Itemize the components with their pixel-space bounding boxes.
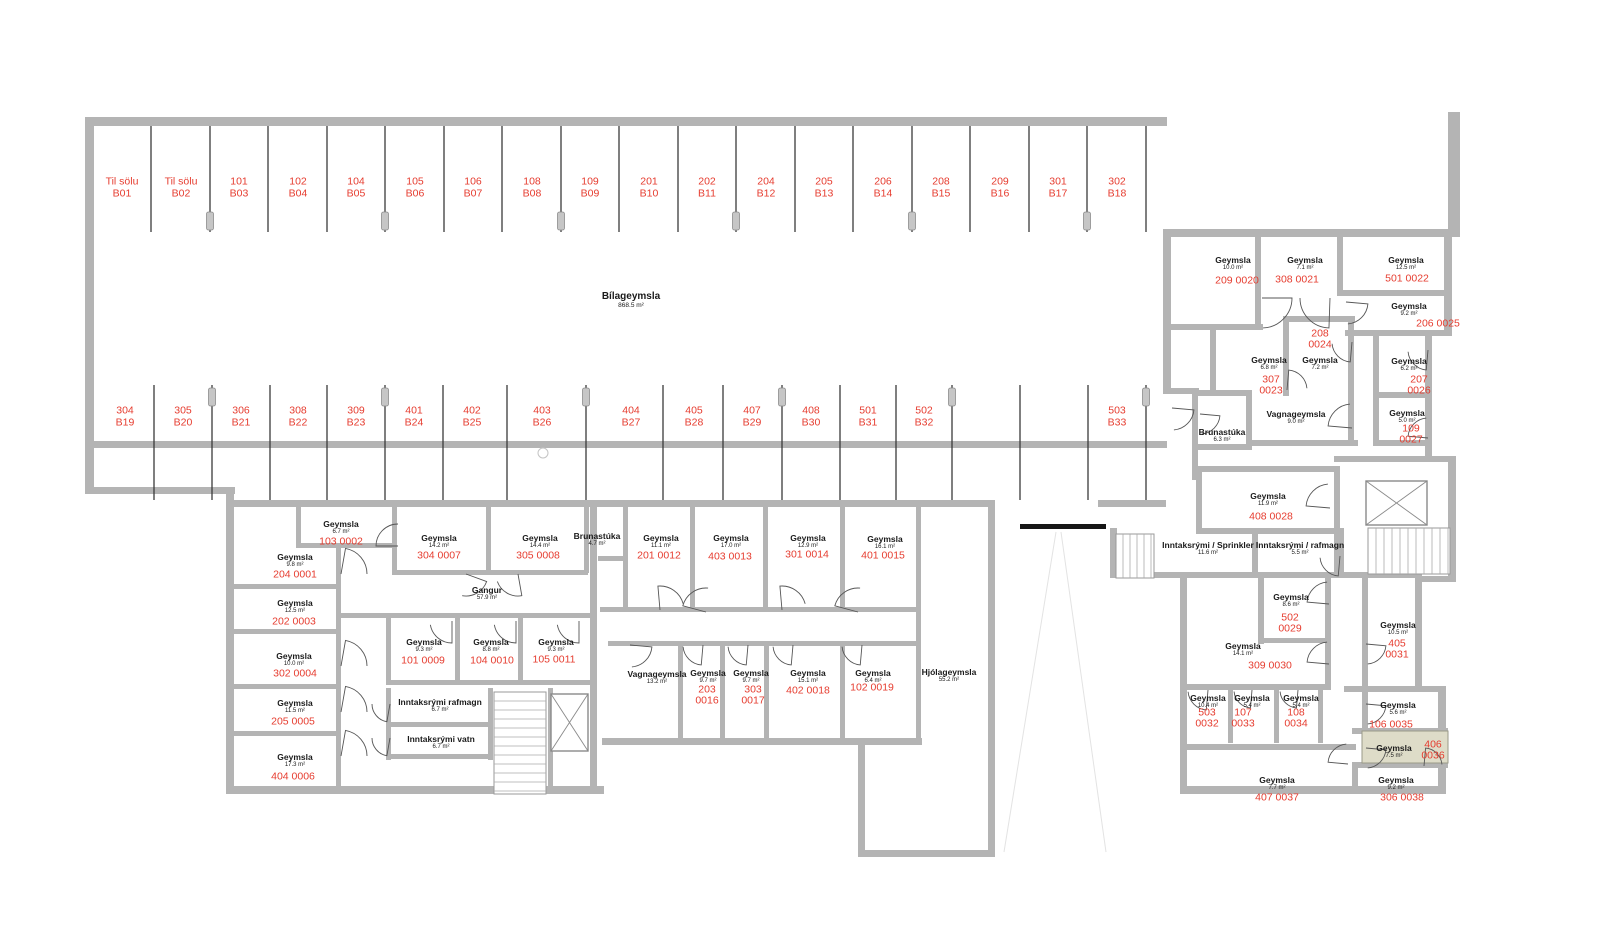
room-area: 7.5 m² (1376, 753, 1411, 760)
parking-stall-label: 306 B21 (232, 405, 251, 429)
room-name: Geymsla (277, 553, 312, 562)
room-name: Gangur (472, 586, 502, 595)
unit-id-label: 308 0021 (1275, 274, 1319, 285)
unit-id-label: 207 0026 (1407, 375, 1430, 398)
room-name: Geymsla (421, 534, 456, 543)
room-name: Geymsla (1380, 701, 1415, 710)
unit-id-label: 302 0004 (273, 668, 317, 679)
room-name: Hjólageymsla (922, 668, 977, 677)
unit-id-label: 204 0001 (273, 569, 317, 580)
unit-id-label: 103 0002 (319, 536, 363, 547)
room-area: 6.8 m² (1251, 365, 1286, 372)
unit-id-label: 206 0025 (1416, 318, 1460, 329)
room-label: Geymsla7.5 m² (1376, 744, 1411, 760)
room-area: 8.6 m² (1273, 602, 1308, 609)
room-name: Geymsla (790, 534, 825, 543)
room-name: Geymsla (867, 535, 902, 544)
unit-id-label: 107 0033 (1231, 708, 1254, 731)
room-area: 6.3 m² (1199, 437, 1246, 444)
parking-stall-label: 401 B24 (405, 405, 424, 429)
room-label: Geymsla9.7 m² (733, 669, 768, 685)
unit-id-label: 102 0019 (850, 682, 894, 693)
parking-stall-label: 209 B16 (991, 176, 1010, 200)
room-name: Geymsla (1283, 694, 1318, 703)
room-label: Geymsla17.3 m² (277, 753, 312, 769)
unit-id-label: 406 0036 (1421, 740, 1444, 763)
room-area: 7.1 m² (1287, 265, 1322, 272)
room-label: Geymsla6.2 m² (1391, 357, 1426, 373)
parking-stall-label: 308 B22 (289, 405, 308, 429)
room-name: Geymsla (538, 638, 573, 647)
unit-id-label: 307 0023 (1259, 375, 1282, 398)
room-name: Geymsla (690, 669, 725, 678)
room-name: Geymsla (1215, 256, 1250, 265)
room-area: 11.9 m² (1250, 501, 1285, 508)
room-name: Geymsla (1391, 357, 1426, 366)
room-label: Geymsla10.0 m² (1215, 256, 1250, 272)
room-label: Vagnageymsla13.2 m² (627, 670, 686, 686)
room-label: Geymsla7.2 m² (1302, 356, 1337, 372)
parking-stall-label: 102 B04 (289, 176, 308, 200)
staircases-layer (494, 528, 1450, 794)
room-label: Inntaksrými / Sprinkler11.6 m² (1162, 541, 1254, 557)
parking-stall-label: 202 B11 (698, 176, 716, 200)
room-label: Geymsla8.8 m² (473, 638, 508, 654)
room-label: Geymsla6.8 m² (1251, 356, 1286, 372)
floor-plan: Bílageymsla 868.5 m² Geymsla6.7 m²Geymsl… (0, 0, 1600, 929)
room-area: 12.5 m² (277, 608, 312, 615)
room-name: Geymsla (277, 699, 312, 708)
parking-stall-label: 204 B12 (757, 176, 776, 200)
room-name: Geymsla (1273, 593, 1308, 602)
parking-stall-label: 205 B13 (815, 176, 834, 200)
unit-id-label: 203 0016 (695, 685, 718, 708)
parking-stall-label: 309 B23 (347, 405, 366, 429)
room-name: Geymsla (1251, 356, 1286, 365)
unit-id-label: 104 0010 (470, 655, 514, 666)
unit-id-label: 106 0035 (1369, 719, 1413, 730)
room-name: Geymsla (1391, 302, 1426, 311)
room-name: Inntaksrými / rafmagn (1256, 541, 1344, 550)
room-area: 4.7 m² (574, 541, 621, 548)
parking-stall-label: 301 B17 (1049, 176, 1068, 200)
room-label: Geymsla7.1 m² (1287, 256, 1322, 272)
room-label: Brunastúka6.3 m² (1199, 428, 1246, 444)
room-area: 55.2 m² (922, 677, 977, 684)
parking-stall-label: 503 B33 (1108, 405, 1127, 429)
room-label: Geymsla10.0 m² (276, 652, 311, 668)
unit-id-label: 404 0006 (271, 771, 315, 782)
room-label: Geymsla14.2 m² (421, 534, 456, 550)
room-name: Geymsla (713, 534, 748, 543)
room-label: Geymsla17.0 m² (713, 534, 748, 550)
room-name: Geymsla (643, 534, 678, 543)
parking-stall-label: 502 B32 (915, 405, 934, 429)
room-area: 57.9 m² (472, 595, 502, 602)
room-label: Geymsla14.4 m² (522, 534, 557, 550)
garage-title-label: Bílageymsla 868.5 m² (602, 291, 660, 309)
unit-id-label: 301 0014 (785, 549, 829, 560)
room-label: Vagnageymsla9.0 m² (1266, 410, 1325, 426)
unit-id-label: 408 0028 (1249, 511, 1293, 522)
room-name: Geymsla (1376, 744, 1411, 753)
unit-id-label: 201 0012 (637, 550, 681, 561)
room-name: Geymsla (406, 638, 441, 647)
unit-id-label: 405 0031 (1385, 639, 1408, 662)
room-label: Geymsla10.5 m² (1380, 621, 1415, 637)
room-area: 8.8 m² (473, 647, 508, 654)
parking-stall-label: 402 B25 (463, 405, 482, 429)
parking-stall-label: 407 B29 (743, 405, 762, 429)
parking-stall-label: 105 B06 (406, 176, 425, 200)
drain-symbol (538, 448, 548, 458)
parking-stall-label: 206 B14 (874, 176, 893, 200)
room-label: Geymsla9.8 m² (277, 553, 312, 569)
room-area: 5.5 m² (1256, 550, 1344, 557)
unit-id-label: 306 0038 (1380, 792, 1424, 803)
room-name: Inntaksrými vatn (407, 735, 475, 744)
garage-area: 868.5 m² (602, 302, 660, 309)
room-area: 10.0 m² (1215, 265, 1250, 272)
room-label: Geymsla5.6 m² (1380, 701, 1415, 717)
room-area: 6.7 m² (398, 707, 482, 714)
unit-id-label: 303 0017 (741, 685, 764, 708)
room-area: 7.2 m² (1302, 365, 1337, 372)
room-name: Geymsla (277, 753, 312, 762)
unit-id-label: 209 0020 (1215, 275, 1259, 286)
room-label: Geymsla6.7 m² (323, 520, 358, 536)
garage-name: Bílageymsla (602, 291, 660, 302)
room-name: Geymsla (1378, 776, 1413, 785)
room-name: Geymsla (473, 638, 508, 647)
unit-id-label: 402 0018 (786, 685, 830, 696)
room-label: Geymsla12.5 m² (1388, 256, 1423, 272)
room-area: 11.5 m² (277, 708, 312, 715)
room-label: Brunastúka4.7 m² (574, 532, 621, 548)
room-label: Geymsla11.9 m² (1250, 492, 1285, 508)
room-area: 13.2 m² (627, 679, 686, 686)
room-label: Gangur57.9 m² (472, 586, 502, 602)
parking-stall-label: 104 B05 (347, 176, 366, 200)
room-name: Geymsla (733, 669, 768, 678)
parking-stall-label: 408 B30 (802, 405, 821, 429)
ramp-layer (1004, 524, 1106, 852)
room-label: Geymsla8.6 m² (1273, 593, 1308, 609)
walls-layer (85, 112, 1460, 857)
room-area: 17.3 m² (277, 762, 312, 769)
room-name: Brunastúka (574, 532, 621, 541)
room-name: Geymsla (1389, 409, 1424, 418)
unit-id-label: 503 0032 (1195, 708, 1218, 731)
unit-id-label: 407 0037 (1255, 792, 1299, 803)
parking-stall-label: 403 B26 (533, 405, 552, 429)
room-name: Geymsla (277, 599, 312, 608)
unit-id-label: 205 0005 (271, 716, 315, 727)
room-name: Inntaksrými / Sprinkler (1162, 541, 1254, 550)
room-area: 14.1 m² (1225, 651, 1260, 658)
unit-id-label: 108 0034 (1284, 708, 1307, 731)
room-label: Geymsla11.5 m² (277, 699, 312, 715)
room-area: 6.7 m² (407, 744, 475, 751)
room-area: 12.5 m² (1388, 265, 1423, 272)
room-label: Inntaksrými rafmagn6.7 m² (398, 698, 482, 714)
unit-id-label: 401 0015 (861, 550, 905, 561)
unit-id-label: 208 0024 (1308, 329, 1331, 352)
room-name: Geymsla (1250, 492, 1285, 501)
room-name: Geymsla (855, 669, 890, 678)
room-area: 10.5 m² (1380, 630, 1415, 637)
room-label: Inntaksrými vatn6.7 m² (407, 735, 475, 751)
room-name: Vagnageymsla (1266, 410, 1325, 419)
room-name: Geymsla (522, 534, 557, 543)
room-name: Geymsla (276, 652, 311, 661)
parking-stall-label: 201 B10 (640, 176, 659, 200)
unit-id-label: 403 0013 (708, 551, 752, 562)
parking-stall-label: 405 B28 (685, 405, 704, 429)
room-name: Geymsla (1302, 356, 1337, 365)
parking-stall-label: 108 B08 (523, 176, 542, 200)
room-name: Geymsla (1388, 256, 1423, 265)
parking-stall-label: 101 B03 (230, 176, 249, 200)
floorplan-svg (0, 0, 1600, 929)
room-label: Geymsla9.2 m² (1391, 302, 1426, 318)
parking-stall-label: Til sölu B01 (106, 176, 139, 200)
unit-id-label: 305 0008 (516, 550, 560, 561)
room-name: Geymsla (1234, 694, 1269, 703)
parking-stall-label: 208 B15 (932, 176, 951, 200)
room-label: Geymsla9.7 m² (690, 669, 725, 685)
room-name: Inntaksrými rafmagn (398, 698, 482, 707)
room-label: Hjólageymsla55.2 m² (922, 668, 977, 684)
room-area: 9.3 m² (406, 647, 441, 654)
parking-stall-label: 302 B18 (1108, 176, 1127, 200)
room-name: Vagnageymsla (627, 670, 686, 679)
parking-stall-label: 106 B07 (464, 176, 483, 200)
room-name: Geymsla (1287, 256, 1322, 265)
unit-id-label: 309 0030 (1248, 660, 1292, 671)
room-name: Geymsla (1380, 621, 1415, 630)
room-label: Geymsla11.1 m² (643, 534, 678, 550)
room-name: Brunastúka (1199, 428, 1246, 437)
parking-stall-label: Til sölu B02 (165, 176, 198, 200)
parking-stall-label: 501 B31 (859, 405, 878, 429)
unit-id-label: 304 0007 (417, 550, 461, 561)
room-label: Geymsla9.2 m² (1378, 776, 1413, 792)
room-label: Geymsla7.7 m² (1259, 776, 1294, 792)
room-label: Geymsla9.3 m² (538, 638, 573, 654)
room-area: 5.6 m² (1380, 710, 1415, 717)
unit-id-label: 109 0027 (1399, 424, 1422, 447)
unit-id-label: 501 0022 (1385, 273, 1429, 284)
room-area: 17.0 m² (713, 543, 748, 550)
parking-stall-label: 304 B19 (116, 405, 135, 429)
room-name: Geymsla (1259, 776, 1294, 785)
parking-stall-label: 305 B20 (174, 405, 193, 429)
room-area: 9.0 m² (1266, 419, 1325, 426)
parking-stall-label: 404 B27 (622, 405, 641, 429)
unit-id-label: 105 0011 (532, 654, 575, 665)
room-label: Geymsla14.1 m² (1225, 642, 1260, 658)
room-area: 6.2 m² (1391, 366, 1426, 373)
room-label: Inntaksrými / rafmagn5.5 m² (1256, 541, 1344, 557)
room-name: Geymsla (1190, 694, 1225, 703)
parking-stall-label: 109 B09 (581, 176, 600, 200)
room-label: Geymsla12.5 m² (277, 599, 312, 615)
room-area: 11.6 m² (1162, 550, 1254, 557)
unit-id-label: 101 0009 (401, 655, 445, 666)
unit-id-label: 202 0003 (272, 616, 316, 627)
room-name: Geymsla (790, 669, 825, 678)
room-label: Geymsla15.1 m² (790, 669, 825, 685)
room-name: Geymsla (1225, 642, 1260, 651)
room-label: Geymsla9.3 m² (406, 638, 441, 654)
unit-id-label: 502 0029 (1278, 613, 1301, 636)
room-name: Geymsla (323, 520, 358, 529)
